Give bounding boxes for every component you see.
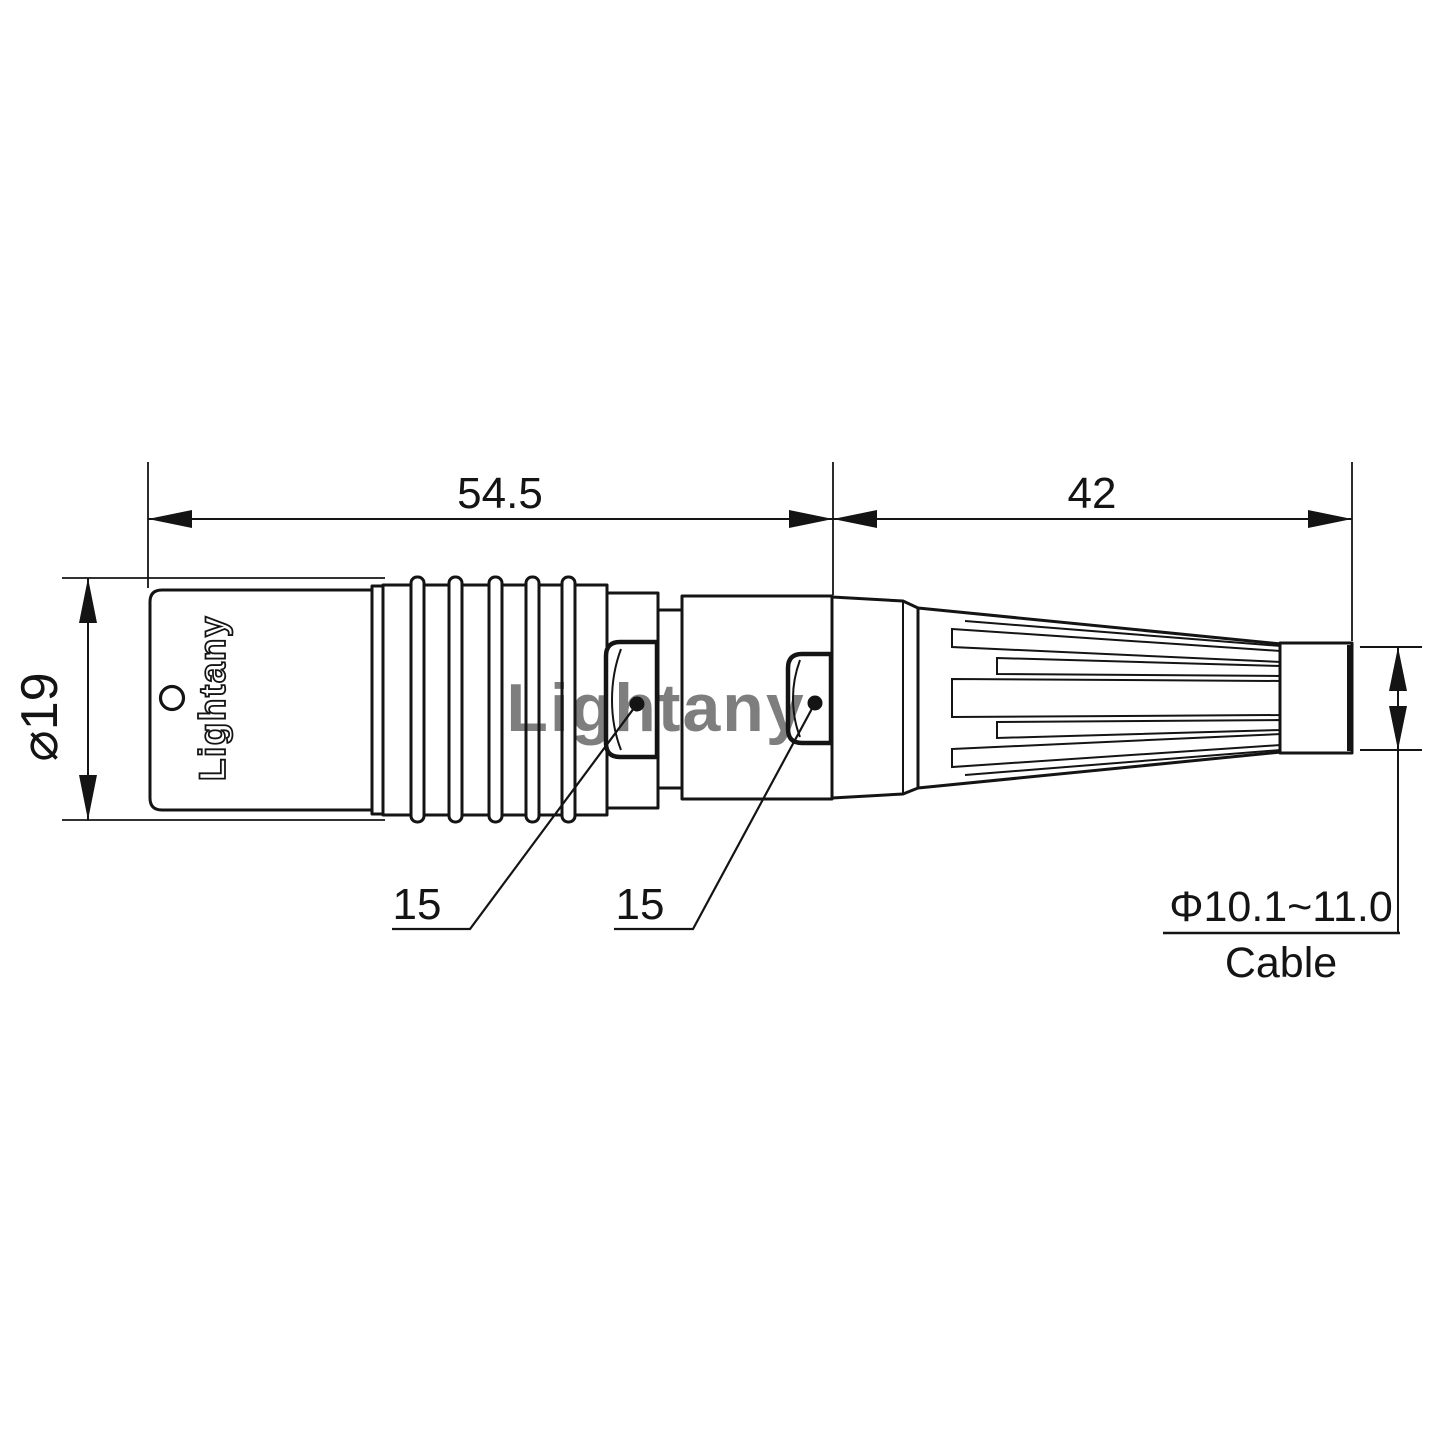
- arrowhead-down: [1389, 706, 1407, 750]
- leader-dot: [630, 697, 645, 712]
- arrowhead-right: [789, 510, 833, 528]
- technical-drawing-canvas: Lightany Lightany 15 15 54.5 42 ⌀19: [0, 0, 1440, 1440]
- rear-flat-size-text: 15: [616, 880, 665, 929]
- front-flat-size-text: 15: [393, 880, 442, 929]
- arrowhead-up: [1389, 647, 1407, 691]
- rear-length-text: 42: [1068, 469, 1117, 518]
- leader-dot: [808, 696, 823, 711]
- boot-fin: [952, 679, 1281, 717]
- body-logo-text: Lightany: [192, 615, 233, 781]
- arrowhead-left: [148, 510, 192, 528]
- grip-ridge: [411, 577, 424, 822]
- watermark-text: Lightany: [506, 670, 805, 746]
- cable-word-text: Cable: [1225, 939, 1337, 987]
- technical-drawing-page: Lightany Lightany 15 15 54.5 42 ⌀19: [0, 0, 1440, 1440]
- cable-diameter-text: Φ10.1~11.0: [1169, 883, 1393, 931]
- dimension-front-length: 54.5: [148, 462, 833, 595]
- front-length-text: 54.5: [457, 469, 543, 518]
- grip-ridge: [489, 577, 502, 822]
- arrowhead-bottom: [79, 775, 97, 820]
- boot-collar: [832, 597, 918, 798]
- body-hole: [161, 687, 184, 710]
- grip-ridge: [449, 577, 462, 822]
- arrowhead-left: [833, 510, 877, 528]
- arrowhead-right: [1308, 510, 1352, 528]
- shell-diameter-text: ⌀19: [11, 672, 69, 761]
- strain-relief-assembly: [832, 597, 1352, 798]
- cable-ferrule: [1280, 643, 1352, 753]
- arrowhead-top: [79, 578, 97, 623]
- shell-ring: [372, 586, 383, 814]
